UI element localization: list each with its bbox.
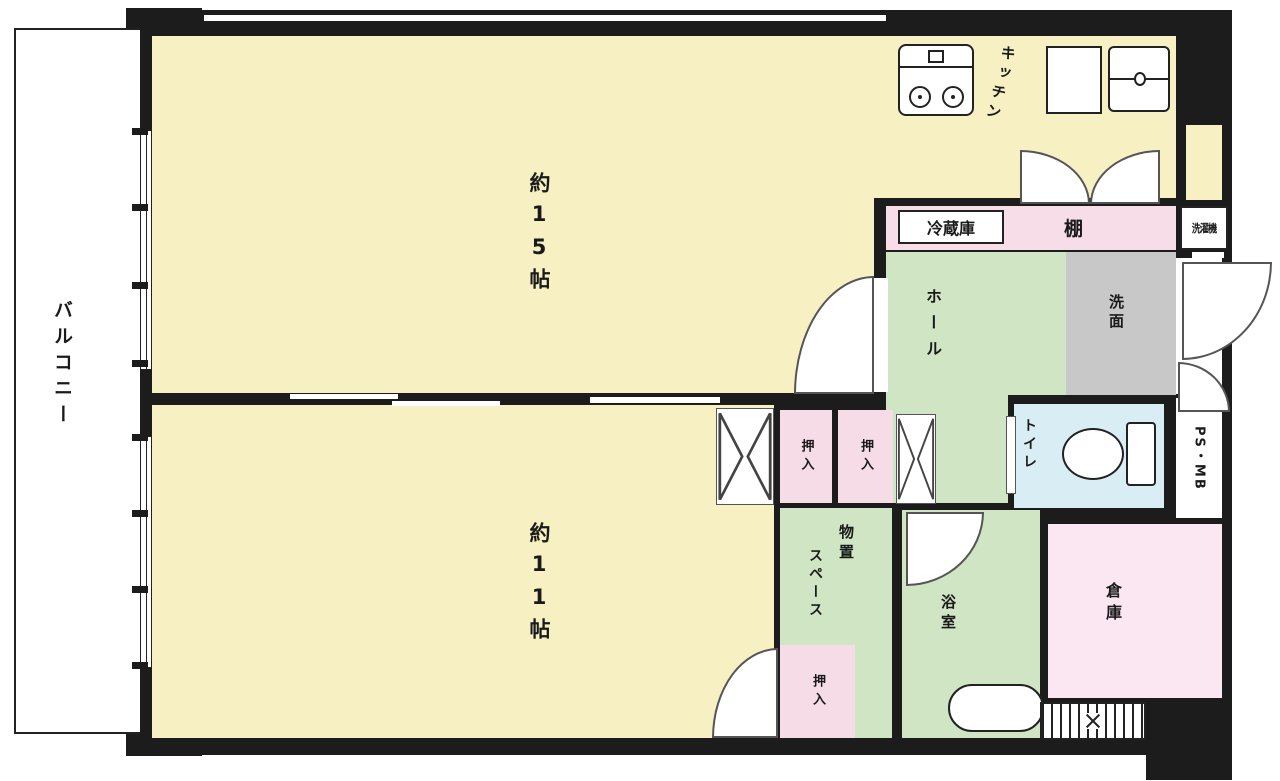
stove-icon xyxy=(898,44,974,116)
room-warehouse xyxy=(1048,524,1222,698)
vent-cross-mark xyxy=(1085,713,1101,729)
window-mullion xyxy=(132,434,148,441)
hall-label: ホール xyxy=(924,288,940,366)
floor-plan: バルコニー 約15帖 約11帖 キッチン 冷蔵庫 棚 洗濯機 xyxy=(0,0,1280,781)
sliding-door-opening xyxy=(392,401,500,406)
shelf-label: 棚 xyxy=(1064,214,1083,241)
entrance-door-arc-icon xyxy=(1182,262,1272,360)
window-mullion xyxy=(132,510,148,517)
wall-corner-bottom-right xyxy=(1146,698,1232,780)
toilet-bowl-icon xyxy=(1062,428,1124,480)
washroom-label: 洗面 xyxy=(1108,294,1123,332)
window-mullion xyxy=(132,128,148,135)
closet-3: 押入 xyxy=(780,645,855,738)
storage-space-label-line1: 物置 xyxy=(838,524,853,564)
ps-mb-shaft: PS・MB xyxy=(1176,398,1222,518)
balcony xyxy=(14,28,140,734)
living-size-label: 約15帖 xyxy=(528,172,549,298)
washer-label: 洗濯機 xyxy=(1192,220,1217,236)
sink-icon xyxy=(1108,46,1170,112)
sliding-door-opening xyxy=(290,394,398,399)
room-bedroom xyxy=(152,405,774,738)
room-living xyxy=(152,36,874,393)
closet-2: 押入 xyxy=(838,410,893,503)
window-mullion xyxy=(132,662,148,669)
closet-2-label: 押入 xyxy=(859,439,872,475)
storage-space-label-line2: スペース xyxy=(808,548,822,620)
kitchen-counter xyxy=(1046,46,1102,114)
closet-3-label: 押入 xyxy=(811,674,824,710)
window-mullion xyxy=(132,360,148,367)
closet-double-door-icon xyxy=(716,408,774,505)
toilet-tank-icon xyxy=(1126,422,1156,486)
toilet-door-leaf xyxy=(1006,416,1016,494)
room-hall-upper xyxy=(886,252,1066,395)
warehouse-label: 倉庫 xyxy=(1104,582,1120,626)
wall-top-channel xyxy=(204,15,886,21)
closet-1: 押入 xyxy=(780,410,832,503)
balcony-window-bedroom xyxy=(140,436,152,668)
closet-1-label: 押入 xyxy=(800,439,813,475)
louver-vent-icon xyxy=(1040,702,1146,740)
fridge-label: 冷蔵庫 xyxy=(927,215,975,239)
washer-space: 洗濯機 xyxy=(1180,206,1228,250)
window-mullion xyxy=(132,586,148,593)
balcony-label: バルコニー xyxy=(52,300,71,430)
bathtub-icon xyxy=(948,684,1044,732)
wall-opening xyxy=(590,397,720,403)
window-mullion xyxy=(132,282,148,289)
bath-label: 浴室 xyxy=(940,594,955,634)
toilet-label: トイレ xyxy=(1022,418,1036,472)
hall-double-door-icon xyxy=(896,414,936,504)
fridge-space: 冷蔵庫 xyxy=(898,210,1004,244)
bedroom-size-label: 約11帖 xyxy=(528,522,549,648)
door-opening xyxy=(872,278,888,392)
room-kitchen-nook xyxy=(1186,125,1222,200)
balcony-window-living xyxy=(140,130,152,370)
window-mullion xyxy=(132,204,148,211)
ps-mb-label: PS・MB xyxy=(1190,426,1209,491)
